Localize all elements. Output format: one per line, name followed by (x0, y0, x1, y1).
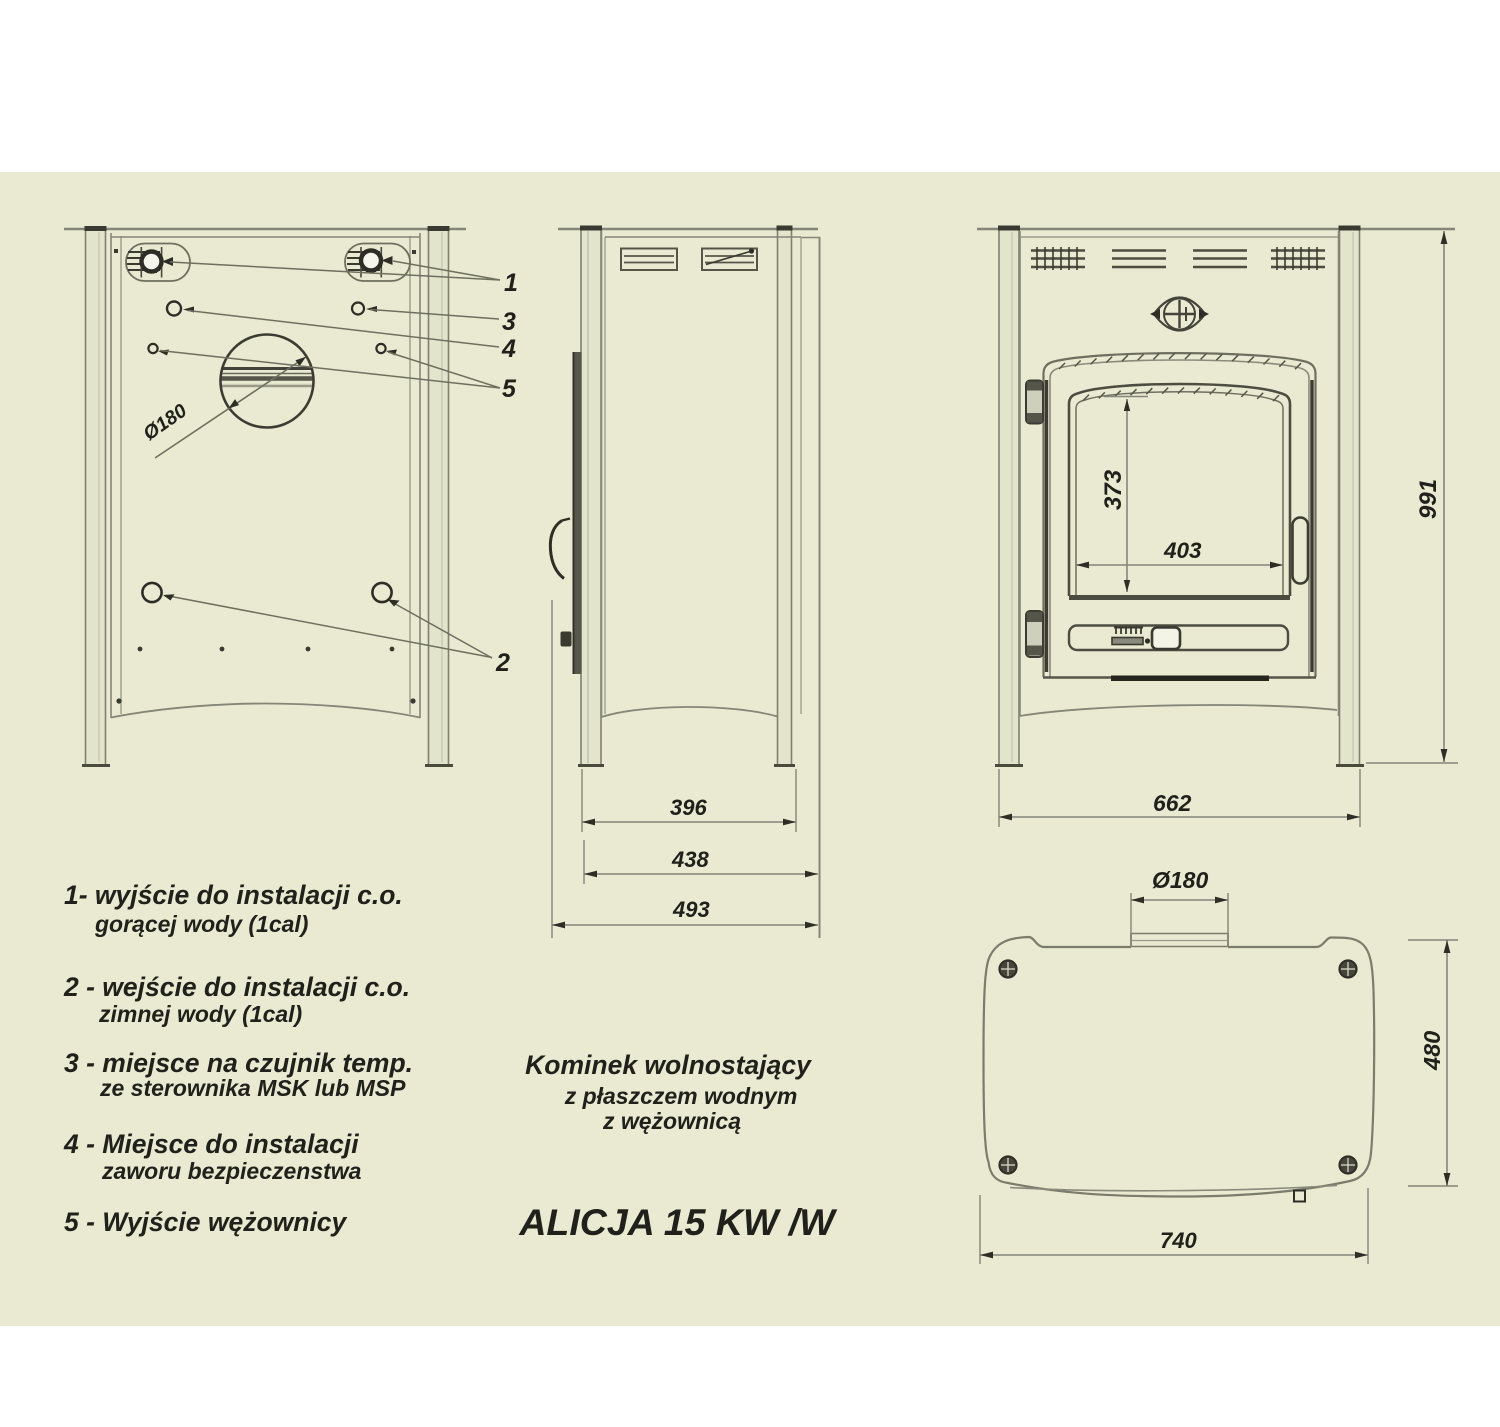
svg-text:1: 1 (504, 269, 518, 297)
svg-text:480: 480 (1419, 1031, 1445, 1071)
svg-text:ALICJA 15 KW /W: ALICJA 15 KW /W (518, 1201, 838, 1243)
svg-text:403: 403 (1163, 538, 1202, 563)
svg-text:740: 740 (1160, 1228, 1197, 1253)
svg-text:438: 438 (671, 847, 709, 872)
svg-text:2 - wejście do instalacji c.o.: 2 - wejście do instalacji c.o. (63, 972, 410, 1002)
svg-text:gorącej wody (1cal): gorącej wody (1cal) (94, 911, 308, 937)
svg-text:396: 396 (670, 795, 707, 820)
svg-text:3 - miejsce na czujnik temp.: 3 - miejsce na czujnik temp. (64, 1048, 413, 1078)
svg-text:5 - Wyjście wężownicy: 5 - Wyjście wężownicy (64, 1207, 348, 1237)
svg-text:Ø180: Ø180 (1152, 867, 1208, 893)
svg-text:4 - Miejsce do instalacji: 4 - Miejsce do instalacji (63, 1129, 359, 1159)
svg-text:zaworu bezpieczenstwa: zaworu bezpieczenstwa (101, 1158, 362, 1184)
svg-text:z płaszczem wodnym: z płaszczem wodnym (564, 1083, 798, 1109)
svg-text:3: 3 (502, 308, 516, 336)
svg-text:4: 4 (501, 335, 516, 363)
svg-text:493: 493 (672, 897, 710, 922)
svg-text:5: 5 (502, 375, 517, 403)
svg-text:373: 373 (1100, 469, 1127, 510)
svg-text:Kominek wolnostający: Kominek wolnostający (525, 1050, 812, 1080)
svg-text:1- wyjście do instalacji c.o.: 1- wyjście do instalacji c.o. (64, 880, 403, 910)
svg-text:991: 991 (1415, 479, 1442, 519)
svg-text:ze sterownika MSK lub MSP: ze sterownika MSK lub MSP (99, 1075, 406, 1101)
svg-text:662: 662 (1153, 790, 1192, 816)
svg-text:2: 2 (495, 649, 510, 677)
svg-text:z wężownicą: z wężownicą (602, 1108, 741, 1134)
svg-text:zimnej wody (1cal): zimnej wody (1cal) (98, 1001, 302, 1027)
